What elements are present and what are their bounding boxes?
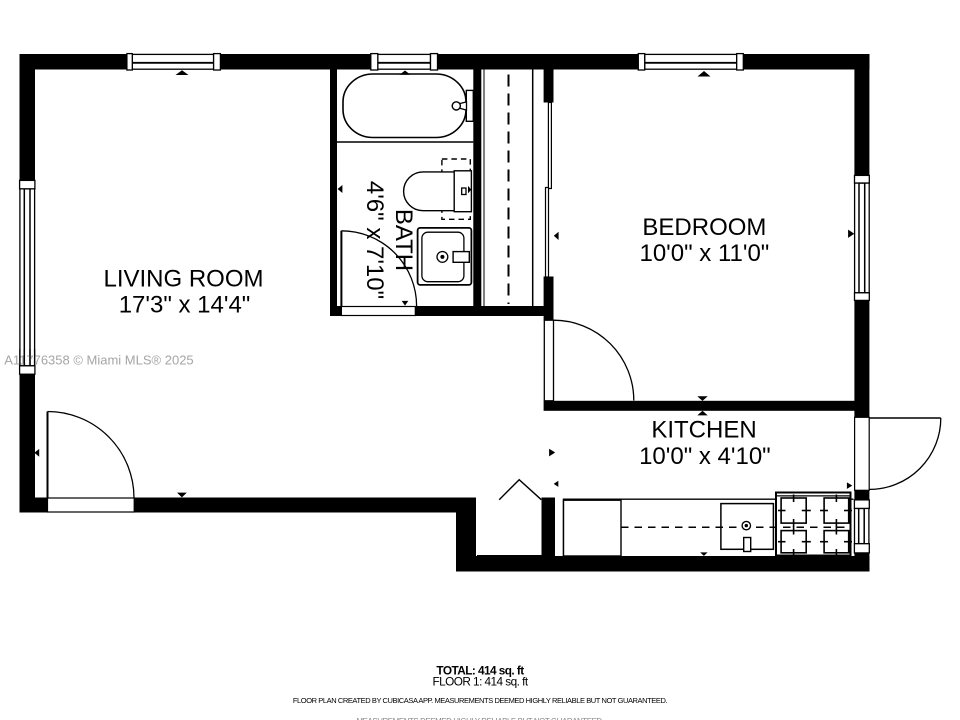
svg-text:BATH: BATH — [390, 209, 417, 271]
svg-text:4'6" x 7'10": 4'6" x 7'10" — [361, 181, 388, 299]
svg-text:A11776358 © Miami MLS® 2025: A11776358 © Miami MLS® 2025 — [4, 352, 193, 367]
svg-text:LIVING ROOM: LIVING ROOM — [103, 266, 263, 293]
svg-text:BEDROOM: BEDROOM — [642, 214, 766, 241]
svg-text:10'0" x 4'10": 10'0" x 4'10" — [639, 443, 771, 470]
svg-text:FLOOR PLAN CREATED BY CUBICASA: FLOOR PLAN CREATED BY CUBICASA APP. MEAS… — [293, 696, 668, 705]
svg-text:KITCHEN: KITCHEN — [651, 417, 756, 444]
svg-text:17'3" x 14'4": 17'3" x 14'4" — [119, 291, 251, 318]
svg-text:FLOOR 1: 414 sq. ft: FLOOR 1: 414 sq. ft — [432, 674, 528, 688]
svg-text:10'0" x 11'0": 10'0" x 11'0" — [639, 240, 769, 267]
